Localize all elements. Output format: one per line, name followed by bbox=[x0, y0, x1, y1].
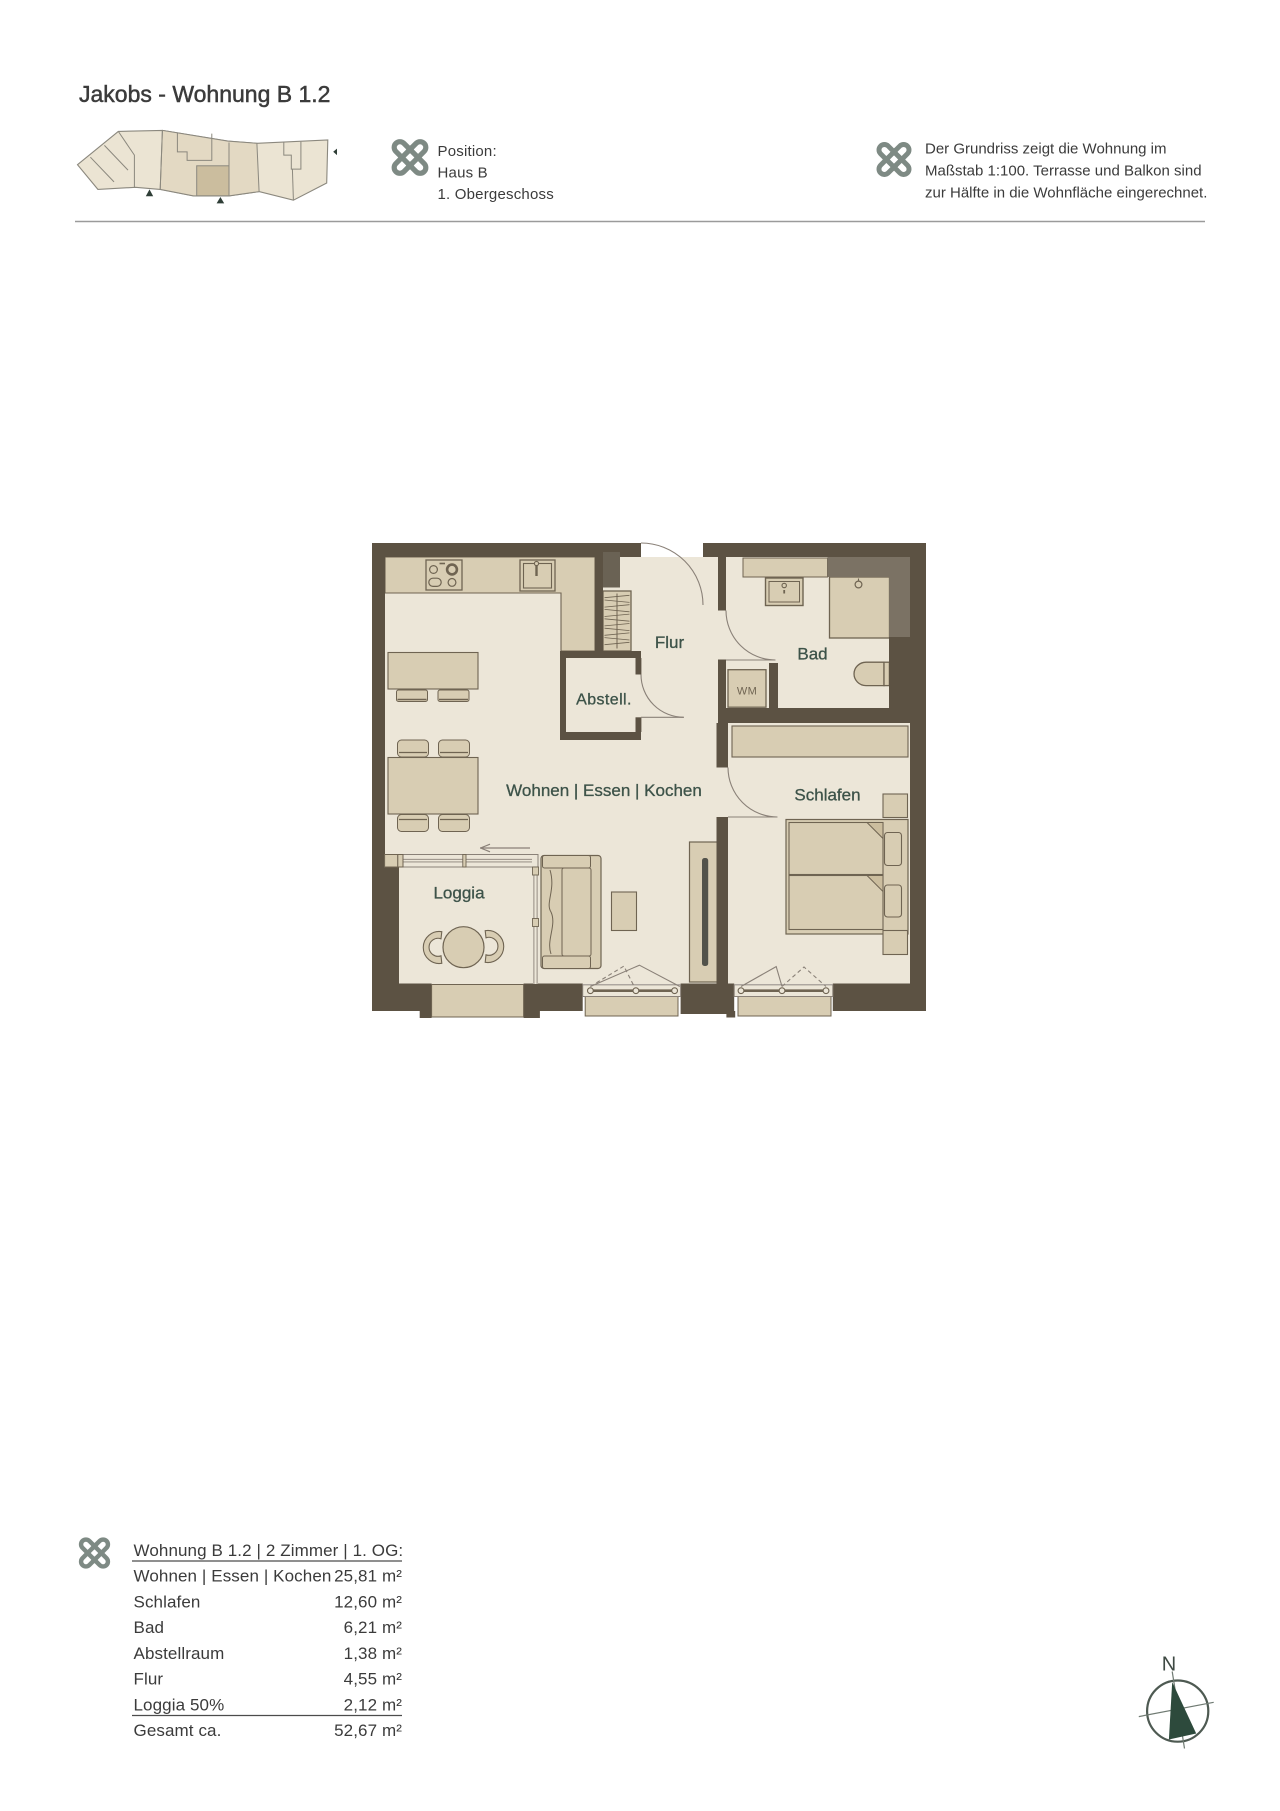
svg-text:Gesamt ca.: Gesamt ca. bbox=[134, 1721, 222, 1740]
svg-text:Wohnen | Essen | Kochen: Wohnen | Essen | Kochen bbox=[506, 781, 702, 800]
svg-text:Schlafen: Schlafen bbox=[134, 1592, 201, 1611]
svg-text:Wohnung B 1.2 | 2 Zimmer | 1.: Wohnung B 1.2 | 2 Zimmer | 1. OG: bbox=[134, 1541, 404, 1560]
svg-text:6,21 m²: 6,21 m² bbox=[344, 1618, 403, 1637]
svg-text:4,55 m²: 4,55 m² bbox=[344, 1670, 403, 1689]
svg-text:Abstellraum: Abstellraum bbox=[134, 1644, 225, 1663]
svg-text:2,12 m²: 2,12 m² bbox=[344, 1696, 403, 1715]
svg-text:25,81 m²: 25,81 m² bbox=[334, 1567, 402, 1586]
svg-text:Maßstab 1:100. Terrasse und Ba: Maßstab 1:100. Terrasse und Balkon sind bbox=[925, 163, 1202, 180]
svg-text:Jakobs - Wohnung B 1.2: Jakobs - Wohnung B 1.2 bbox=[79, 81, 330, 107]
svg-text:Wohnen | Essen | Kochen: Wohnen | Essen | Kochen bbox=[134, 1567, 332, 1586]
svg-text:Loggia 50%: Loggia 50% bbox=[134, 1696, 225, 1715]
svg-text:Abstell.: Abstell. bbox=[576, 692, 632, 709]
svg-text:WM: WM bbox=[737, 686, 757, 698]
svg-text:1,38 m²: 1,38 m² bbox=[344, 1644, 403, 1663]
svg-text:zur Hälfte in die Wohnfläche e: zur Hälfte in die Wohnfläche eingerechne… bbox=[925, 185, 1207, 202]
svg-text:Bad: Bad bbox=[134, 1618, 165, 1637]
svg-text:N: N bbox=[1162, 1654, 1176, 1676]
svg-text:Bad: Bad bbox=[797, 645, 827, 664]
svg-text:52,67 m²: 52,67 m² bbox=[334, 1721, 402, 1740]
svg-text:Schlafen: Schlafen bbox=[794, 786, 860, 805]
svg-text:1. Obergeschoss: 1. Obergeschoss bbox=[438, 186, 554, 203]
svg-text:Der Grundriss zeigt die Wohnun: Der Grundriss zeigt die Wohnung im bbox=[925, 141, 1167, 158]
svg-text:Flur: Flur bbox=[655, 633, 685, 652]
svg-text:Position:: Position: bbox=[438, 143, 497, 160]
svg-text:12,60 m²: 12,60 m² bbox=[334, 1592, 402, 1611]
svg-text:Loggia: Loggia bbox=[433, 884, 485, 903]
svg-text:Flur: Flur bbox=[134, 1670, 164, 1689]
svg-text:Haus B: Haus B bbox=[438, 165, 488, 182]
